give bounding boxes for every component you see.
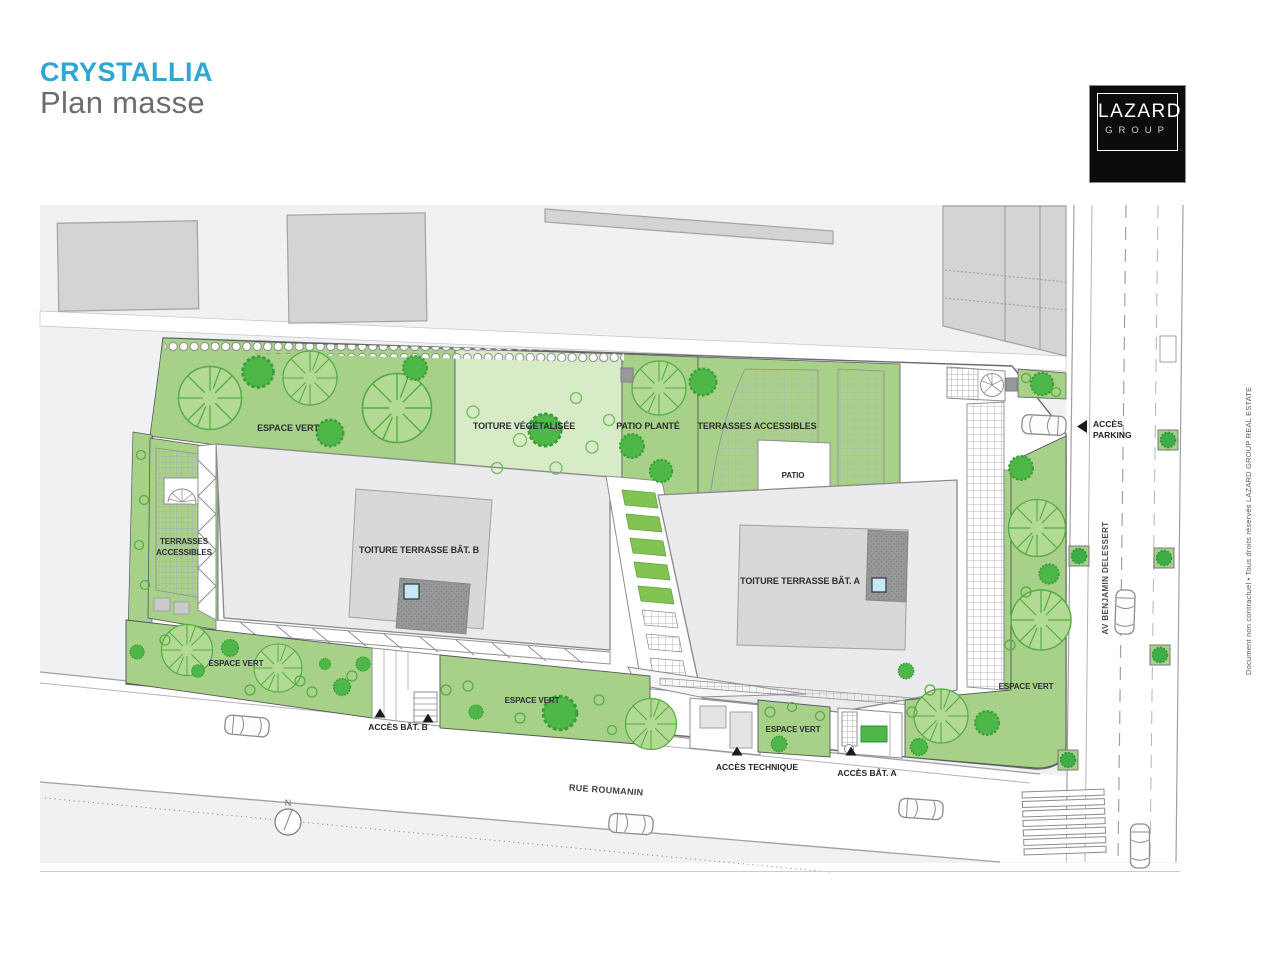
label-espace-vert-bottom-left: ESPACE VERT	[209, 659, 264, 668]
label-patio-plante: PATIO PLANTÉ	[616, 421, 680, 431]
bottom-divider	[40, 871, 1180, 872]
tree-outline	[1011, 590, 1071, 650]
car	[1131, 824, 1150, 868]
tree	[130, 645, 144, 659]
label-espace-vert-top: ESPACE VERT	[257, 423, 319, 433]
utility-pad	[174, 602, 189, 614]
car	[898, 798, 943, 820]
street-tree	[1154, 548, 1174, 568]
label-toiture-terrasse-b: TOITURE TERRASSE BÂT. B	[359, 544, 480, 555]
utility-pad	[154, 598, 170, 611]
tree	[911, 739, 928, 756]
label-terrasses-left-1: TERRASSES	[160, 537, 209, 546]
tree	[1031, 373, 1053, 395]
half-round-stair	[164, 478, 200, 504]
bus-stop	[1160, 336, 1176, 362]
label-acces-parking-2: PARKING	[1093, 430, 1132, 440]
tree	[1039, 564, 1059, 584]
tree-outline	[914, 689, 968, 743]
label-patio: PATIO	[782, 471, 805, 480]
neighbor-building-1	[57, 221, 199, 311]
tree-outline	[363, 374, 432, 443]
label-av-benjamin-delessert: AV BENJAMIN DELESSERT	[1101, 521, 1110, 634]
tree	[403, 356, 427, 380]
label-terrasses-left-2: ACCESSIBLES	[156, 548, 213, 557]
entrance-technique	[690, 698, 760, 755]
car	[224, 715, 269, 738]
tree	[898, 663, 913, 678]
site-plan-drawing: N ESPACE VERT TOITURE VÉGÉTALISÉE PATIO …	[0, 0, 1280, 960]
tree-outline	[254, 644, 302, 692]
skylight-a	[872, 578, 886, 592]
tree	[192, 665, 205, 678]
tree	[690, 369, 717, 396]
tree-outline	[162, 625, 213, 676]
label-toiture-vegetalisee: TOITURE VÉGÉTALISÉE	[473, 421, 575, 431]
label-acces-bat-b: ACCÈS BÂT. B	[368, 721, 428, 732]
tree-outline	[632, 361, 686, 415]
tree-outline	[1009, 500, 1066, 557]
tree	[317, 420, 344, 447]
label-acces-parking-1: ACCÈS	[1093, 419, 1123, 429]
tree-outline	[626, 699, 677, 750]
street-tree	[1150, 645, 1170, 665]
street-tree	[1069, 546, 1089, 566]
car	[1022, 414, 1067, 435]
skylight-b	[404, 584, 419, 599]
avenue-street	[1066, 205, 1183, 862]
green-patch-topright	[1018, 369, 1066, 399]
label-acces-technique: ACCÈS TECHNIQUE	[716, 762, 799, 772]
tree-outline	[283, 351, 337, 405]
tree	[243, 357, 274, 388]
disclaimer-text: Document non contractuel • Tous droits r…	[1244, 415, 1262, 675]
label-espace-vert-right: ESPACE VERT	[999, 682, 1054, 691]
tree	[334, 679, 351, 696]
tree-outline	[179, 367, 242, 430]
car	[608, 813, 653, 835]
tree	[771, 736, 786, 751]
car	[1115, 590, 1136, 635]
label-espace-vert-bottom-center: ESPACE VERT	[505, 696, 560, 705]
utility-pad	[621, 368, 633, 382]
tree	[975, 711, 999, 735]
label-terrasses-accessibles: TERRASSES ACCESSIBLES	[697, 421, 816, 431]
street-tree	[1058, 750, 1078, 770]
tree	[222, 640, 239, 657]
tree	[650, 460, 672, 482]
street-tree	[1158, 430, 1178, 450]
neighbor-building-2	[287, 213, 427, 323]
label-toiture-terrasse-a: TOITURE TERRASSE BÂT. A	[740, 575, 860, 586]
right-terrace-strip	[967, 402, 1011, 690]
label-espace-vert-bottom-mid: ESPACE VERT	[766, 725, 821, 734]
tree	[620, 434, 644, 458]
entrance-bat-a	[838, 708, 902, 758]
tree	[469, 705, 483, 719]
tree	[1009, 456, 1033, 480]
tree	[319, 658, 330, 669]
utility-pad	[1006, 378, 1017, 391]
label-acces-bat-a: ACCÈS BÂT. A	[837, 767, 896, 778]
north-label: N	[285, 798, 292, 808]
pergola	[861, 726, 887, 742]
building-b-truss-left	[198, 444, 216, 620]
tree	[356, 657, 370, 671]
